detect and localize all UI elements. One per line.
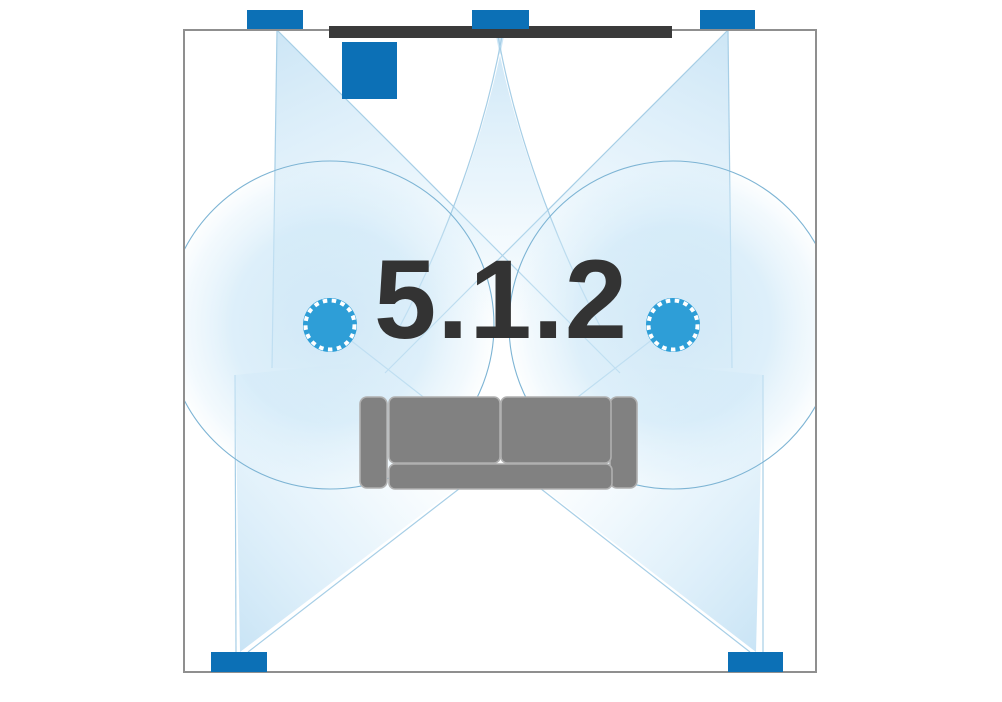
- configuration-label: 5.1.2: [0, 244, 1002, 356]
- front-right-speaker: [700, 10, 755, 29]
- sofa: [360, 397, 637, 489]
- sofa-left-armrest: [360, 397, 387, 488]
- subwoofer: [342, 42, 397, 99]
- center-speaker: [472, 10, 529, 29]
- sofa-right-armrest: [610, 397, 637, 488]
- sofa-seat-left: [389, 397, 500, 463]
- surround-left-speaker: [211, 652, 267, 672]
- front-left-speaker: [247, 10, 303, 29]
- speaker-layout-diagram: 5.1.2: [0, 0, 1002, 702]
- surround-right-speaker: [728, 652, 783, 672]
- sofa-seat-right: [501, 397, 611, 463]
- sofa-front-cushion: [389, 464, 612, 489]
